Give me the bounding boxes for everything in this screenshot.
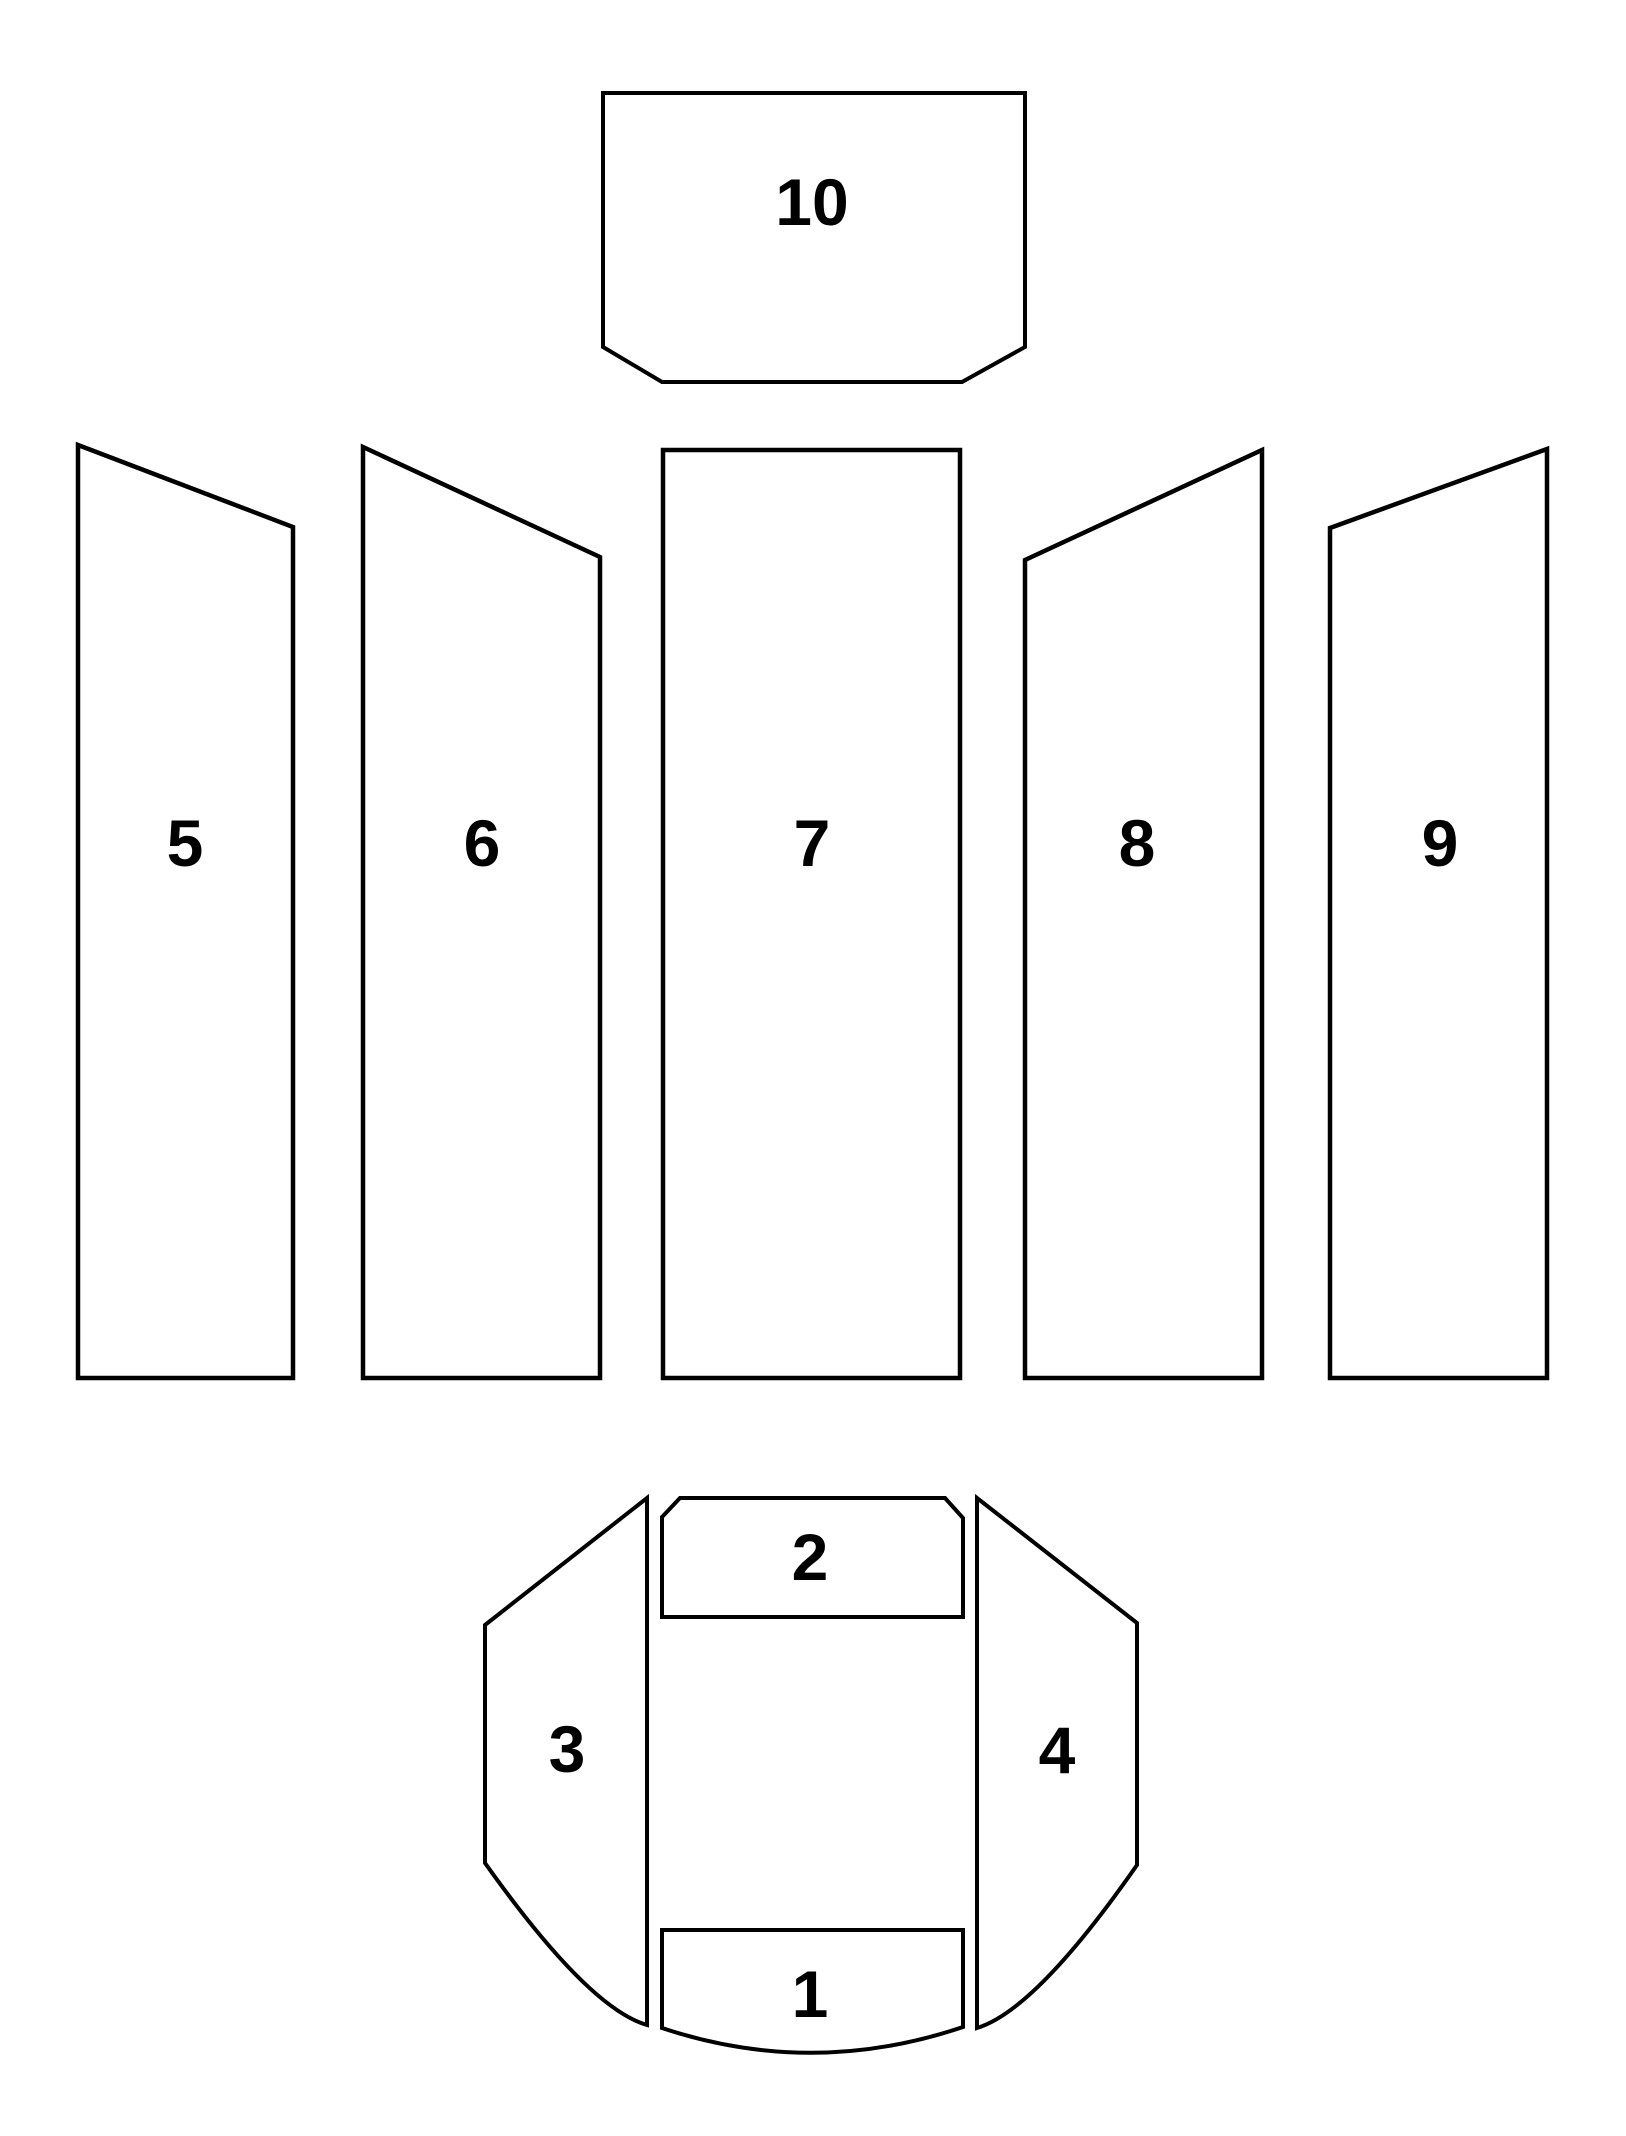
part-3-label: 3 [549,1712,586,1786]
part-4-label: 4 [1039,1713,1076,1787]
part-7: 7 [663,450,960,1378]
part-8: 8 [1025,450,1262,1378]
part-1: 1 [662,1930,963,2053]
part-5: 5 [78,445,293,1378]
part-9: 9 [1330,449,1547,1378]
part-6-label: 6 [464,806,501,880]
part-9-shape [1330,449,1547,1378]
firebrick-layout-diagram: 10 5 6 7 8 9 2 3 [0,0,1626,2136]
part-2-label: 2 [792,1520,829,1594]
part-8-label: 8 [1119,806,1156,880]
part-8-shape [1025,450,1262,1378]
part-9-label: 9 [1422,806,1459,880]
part-7-shape [663,450,960,1378]
part-2: 2 [662,1498,963,1617]
part-4: 4 [977,1498,1137,2028]
part-6-shape [363,447,600,1378]
part-3: 3 [485,1498,647,2025]
part-10-label: 10 [775,165,848,239]
part-1-label: 1 [792,1957,829,2031]
part-5-label: 5 [167,806,204,880]
part-6: 6 [363,447,600,1378]
part-10: 10 [603,93,1025,382]
part-7-label: 7 [794,806,831,880]
part-5-shape-highlighted [78,445,293,1378]
diagram-canvas: 10 5 6 7 8 9 2 3 [0,0,1626,2136]
